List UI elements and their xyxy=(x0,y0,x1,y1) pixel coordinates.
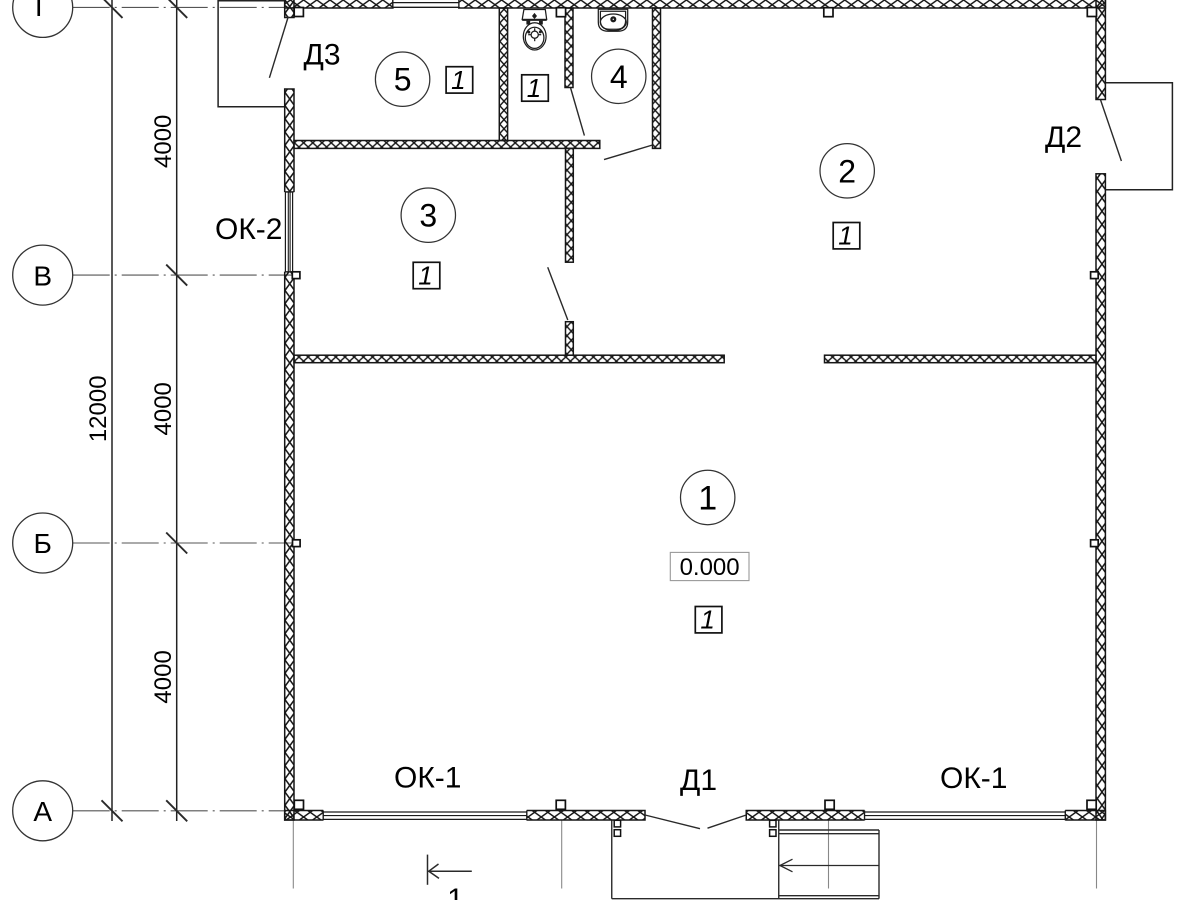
svg-text:Д1: Д1 xyxy=(680,764,717,797)
svg-text:ОК-2: ОК-2 xyxy=(215,213,283,246)
svg-text:4000: 4000 xyxy=(150,115,177,168)
svg-text:4000: 4000 xyxy=(150,650,177,703)
svg-text:1: 1 xyxy=(698,480,717,518)
svg-text:ОК-1: ОК-1 xyxy=(394,762,462,795)
svg-text:1: 1 xyxy=(527,73,541,103)
svg-text:0.000: 0.000 xyxy=(680,554,740,581)
svg-text:1: 1 xyxy=(838,221,852,251)
svg-text:1: 1 xyxy=(451,65,465,95)
svg-text:1: 1 xyxy=(700,605,714,635)
svg-text:1: 1 xyxy=(447,883,464,900)
svg-text:3: 3 xyxy=(419,198,437,234)
svg-text:В: В xyxy=(33,260,52,291)
svg-text:4: 4 xyxy=(610,59,628,95)
svg-text:А: А xyxy=(33,796,52,827)
svg-text:Б: Б xyxy=(34,528,52,559)
svg-text:5: 5 xyxy=(394,62,412,98)
svg-text:4000: 4000 xyxy=(150,382,177,435)
svg-text:2: 2 xyxy=(838,153,856,189)
svg-text:12000: 12000 xyxy=(85,375,112,442)
svg-text:Д2: Д2 xyxy=(1045,121,1082,154)
svg-text:ОК-1: ОК-1 xyxy=(940,762,1008,795)
svg-text:Г: Г xyxy=(35,0,50,22)
svg-text:1: 1 xyxy=(418,261,432,291)
svg-text:Д3: Д3 xyxy=(304,39,341,72)
